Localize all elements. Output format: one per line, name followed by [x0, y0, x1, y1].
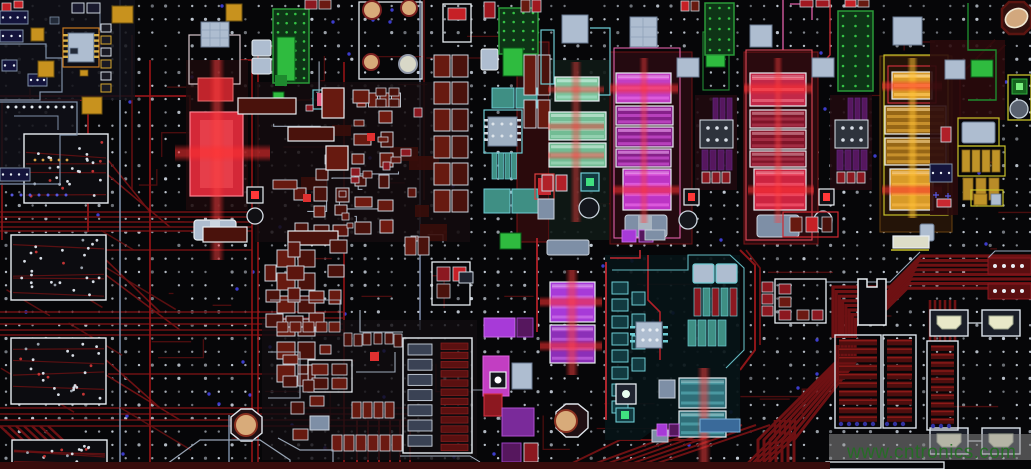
svg-text:www.cntronics.com: www.cntronics.com [846, 442, 1016, 463]
